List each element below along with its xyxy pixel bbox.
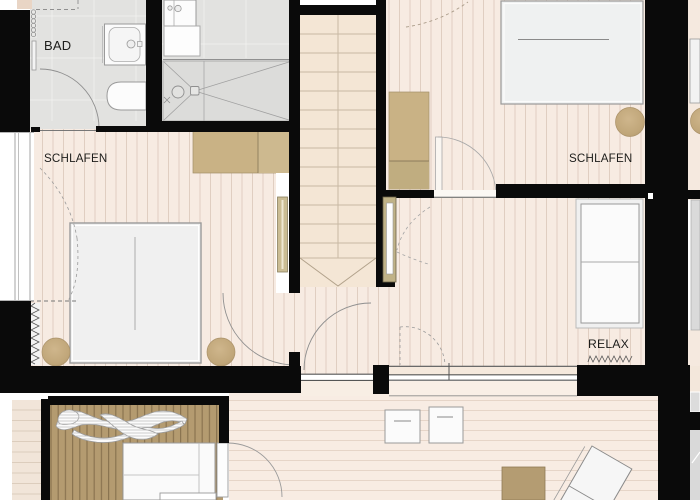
svg-text:RELAX: RELAX: [588, 337, 629, 351]
svg-text:SCHLAFEN: SCHLAFEN: [44, 152, 107, 165]
svg-text:SCHLAFEN: SCHLAFEN: [569, 152, 632, 165]
svg-text:BAD: BAD: [44, 38, 71, 53]
